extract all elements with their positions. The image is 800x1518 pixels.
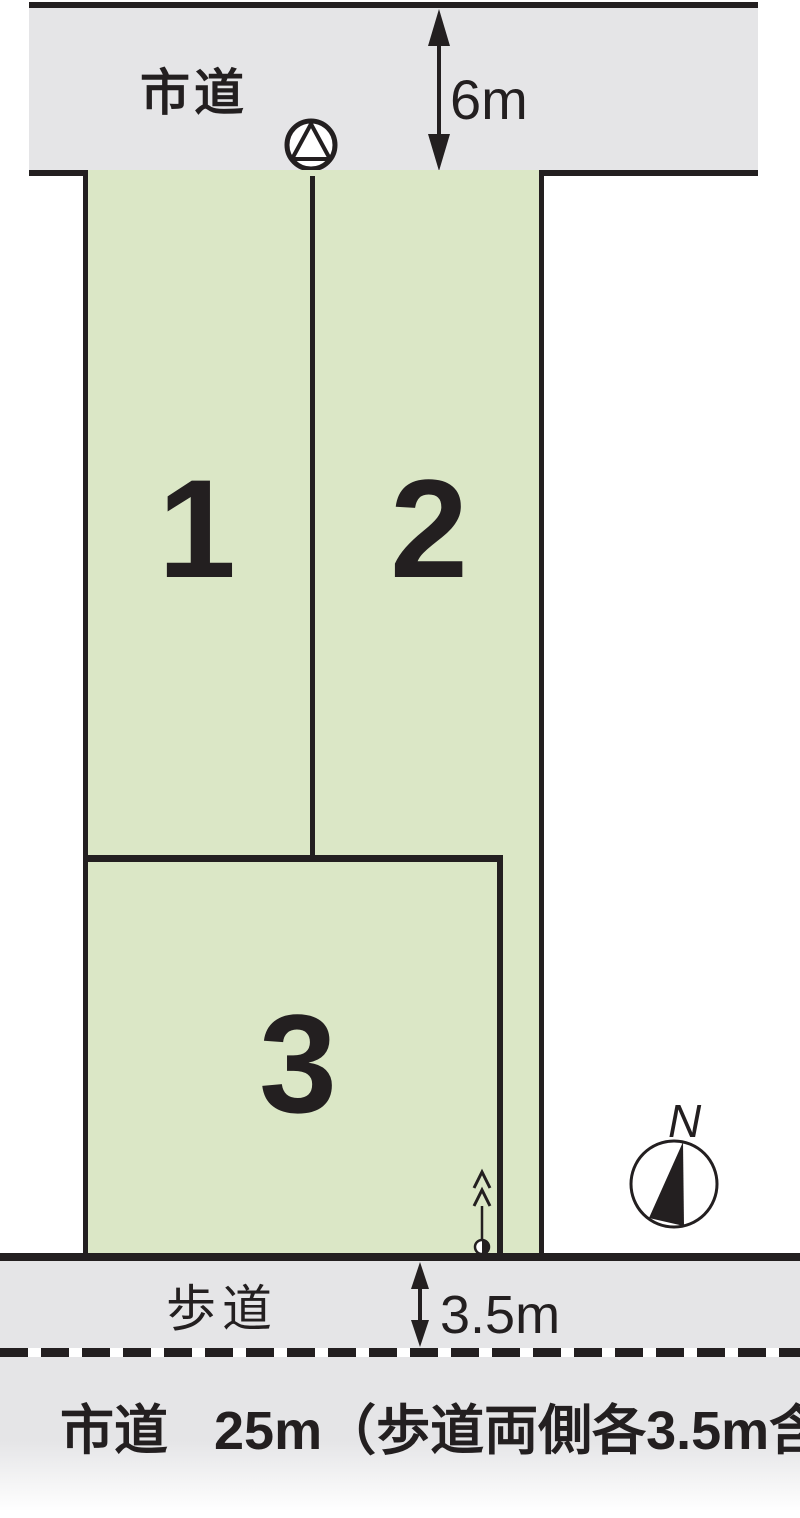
lot3-top-boundary-line [83, 855, 503, 862]
access-marker-icon [462, 1166, 502, 1258]
lot-3-label: 3 [259, 994, 337, 1134]
compass-icon [625, 1095, 725, 1235]
bottom-road-spec: 25m（歩道両側各3.5m含） [214, 1401, 800, 1461]
sidewalk-width-arrow-icon [402, 1261, 438, 1348]
lot1-lot2-boundary-line [310, 176, 315, 858]
bottom-road-name: 市道 [60, 1401, 168, 1461]
road-dashed-boundary-line [0, 1348, 800, 1357]
bottom-road-label: 市道25m（歩道両側各3.5m含） [60, 1404, 800, 1458]
top-road-label: 市道 [140, 68, 248, 118]
lot-2-label: 2 [390, 459, 468, 599]
sidewalk-top-boundary-line [0, 1253, 800, 1261]
sidewalk-band [0, 1261, 800, 1348]
top-road-band [29, 2, 758, 176]
survey-marker-icon [283, 117, 339, 177]
lot-layout-diagram: 市道 6m 1 2 3 歩道 3.5m 市道25m（歩道両側各3.5m [0, 0, 800, 1518]
lot-1-label: 1 [158, 459, 236, 599]
top-road-width-label: 6m [450, 72, 528, 128]
sidewalk-label: 歩道 [166, 1284, 278, 1334]
sidewalk-width-label: 3.5m [440, 1288, 560, 1342]
